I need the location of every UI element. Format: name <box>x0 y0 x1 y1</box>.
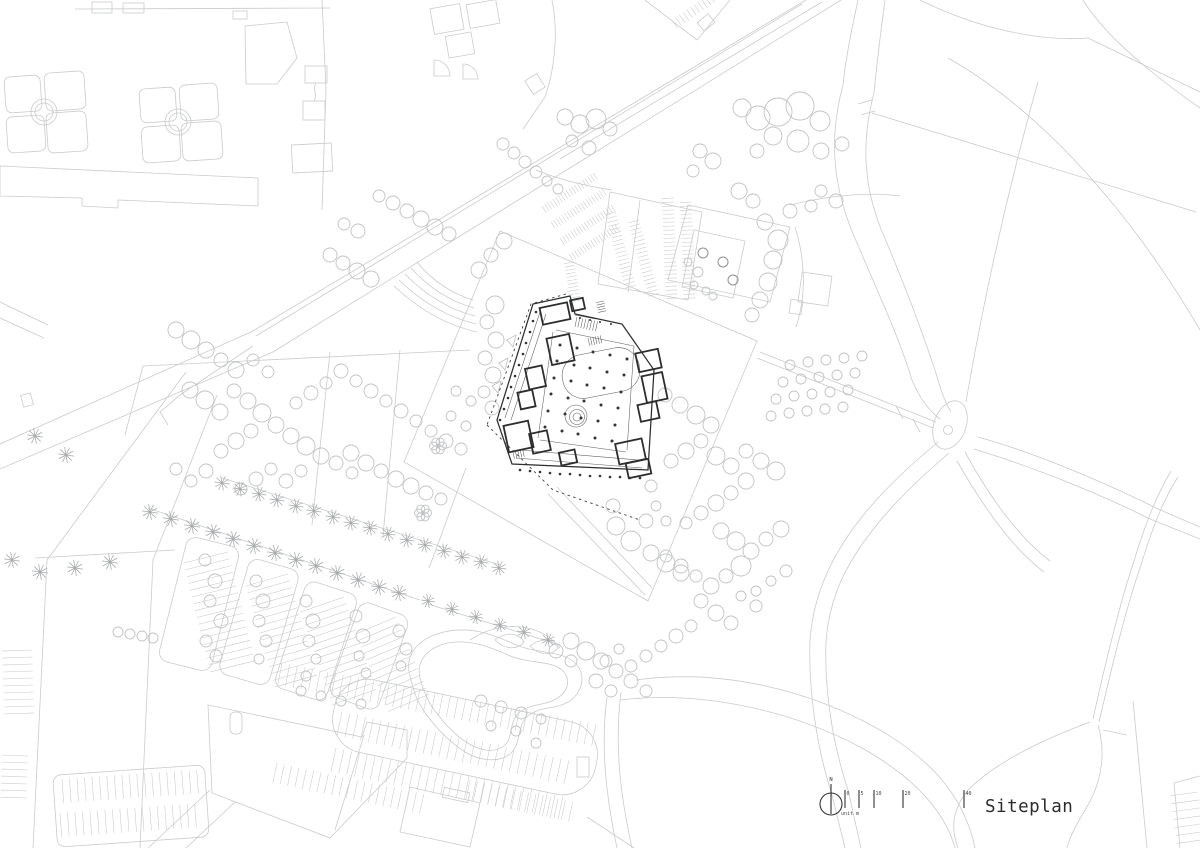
layer-gardens <box>4 71 223 164</box>
scale-tick-label-10: 10 <box>876 791 882 797</box>
siteplan-sheet: N 0 5 10 20 40 unit m Siteplan <box>0 0 1200 848</box>
layer-park-paths <box>757 0 1200 848</box>
siteplan-drawing: N 0 5 10 20 40 unit m Siteplan <box>0 0 1200 848</box>
scale-tick-label-20: 20 <box>905 791 911 797</box>
layer-main-building-rooms <box>503 298 667 478</box>
layer-site-grounds <box>53 170 900 847</box>
scale-unit-label: unit m <box>841 811 859 817</box>
scale-tick-label-0: 0 <box>847 791 850 797</box>
scale-tick-label-40: 40 <box>966 791 972 797</box>
siteplan-title: Siteplan <box>985 797 1073 817</box>
layer-trees <box>113 92 867 748</box>
generated-linework <box>0 0 1200 848</box>
layer-main-building-walls <box>497 296 654 470</box>
layer-building-surround <box>492 335 516 393</box>
legend: N 0 5 10 20 40 unit m Siteplan <box>829 777 1073 817</box>
scale-tick-label-5: 5 <box>861 791 864 797</box>
layer-palms <box>4 428 555 647</box>
layer-main-building-thin <box>505 312 643 468</box>
layer-trees-dark <box>698 248 738 285</box>
north-label: N <box>829 777 832 783</box>
